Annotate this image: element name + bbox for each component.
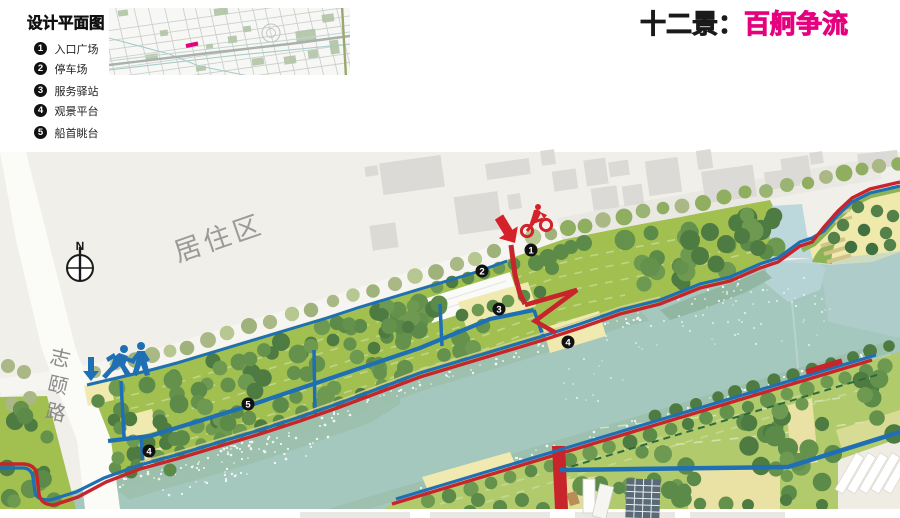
- svg-text:1: 1: [528, 245, 534, 256]
- svg-text:N: N: [76, 239, 85, 253]
- svg-text:2: 2: [479, 266, 484, 277]
- svg-text:5: 5: [245, 399, 251, 410]
- svg-text:4: 4: [565, 337, 571, 348]
- svg-text:4: 4: [146, 446, 152, 457]
- svg-text:3: 3: [496, 304, 501, 315]
